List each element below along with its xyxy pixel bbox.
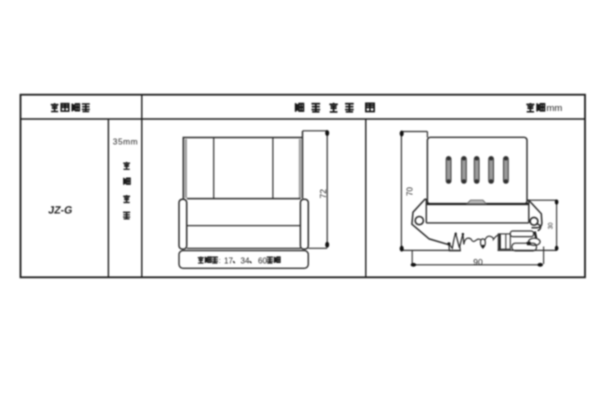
svg-text:30: 30 [549, 222, 555, 229]
svg-text:34: 34 [241, 256, 250, 265]
svg-text:72: 72 [318, 189, 328, 199]
svg-text:35mm: 35mm [113, 136, 138, 146]
svg-text:90: 90 [473, 257, 483, 267]
svg-text:JZ-G: JZ-G [48, 204, 74, 216]
svg-text::: : [219, 256, 221, 265]
svg-text:70: 70 [406, 187, 415, 196]
svg-text:17: 17 [224, 256, 233, 265]
svg-text:mm: mm [547, 103, 563, 114]
svg-text:60: 60 [258, 256, 267, 265]
